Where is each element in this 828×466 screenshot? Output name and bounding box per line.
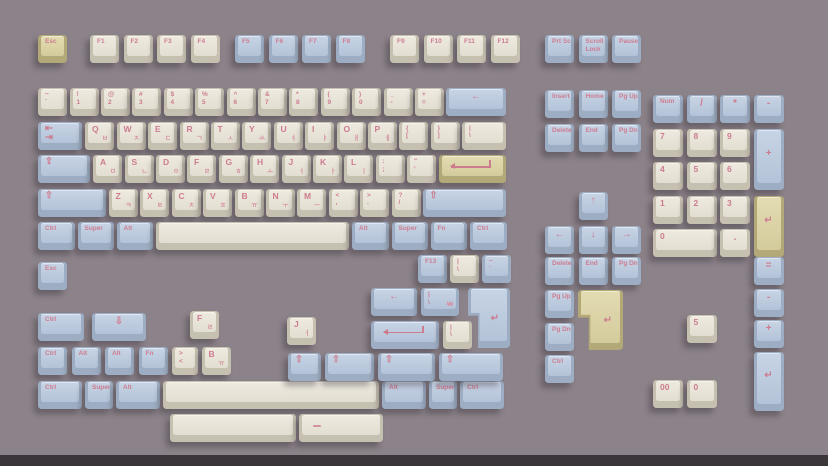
key-e-top-face: Eㄷ	[151, 123, 174, 143]
key-backslash-legend: | \	[469, 125, 471, 140]
key-arrow-right-glyph-icon: →	[615, 227, 638, 242]
key-arrow-left-glyph-icon: ←	[548, 227, 571, 242]
key-numpad-divide: /	[687, 95, 717, 123]
key-numpad-plus-1u-top-face: +	[757, 321, 781, 341]
key-numpad-6-legend: 6	[727, 165, 732, 174]
key-alt-15-right-legend: Alt	[389, 384, 398, 392]
key-won-sub-legend: ₩	[447, 301, 453, 308]
key-delete-legend: Delete	[552, 127, 572, 135]
key-right-alt-legend: Alt	[359, 225, 368, 233]
key-numpad-3-top-face: 3	[723, 197, 747, 217]
key-numpad-equals: =	[754, 257, 784, 285]
key-ctrl-15-right: Ctrl	[460, 381, 504, 409]
key-super-1u-left-legend: Super	[92, 384, 110, 392]
key-right-super: Super	[392, 222, 429, 250]
key-f11: F11	[457, 35, 486, 63]
key-k-sub-legend: ㅏ	[330, 165, 336, 175]
key-1-legend: ! 1	[77, 91, 81, 106]
key-f8-legend: F8	[343, 38, 351, 46]
key-quote-legend: " '	[414, 158, 417, 173]
key-n-legend: N	[273, 192, 279, 201]
key-j: Jㅓ	[282, 155, 311, 183]
key-f-homing-top-face: Fㄹ	[193, 312, 216, 332]
key-9-legend: ( 9	[328, 91, 332, 106]
key-a-sub-legend: ㅁ	[110, 165, 116, 175]
key-delete-top-face: Delete	[548, 125, 571, 145]
key-super-1u-left-top-face: Super	[88, 382, 110, 402]
key-left-alt: Alt	[117, 222, 154, 250]
key-h: Hㅗ	[250, 155, 279, 183]
key-pause: Pause	[612, 35, 641, 63]
key-enter-return-arrow-icon	[451, 166, 490, 168]
key-numpad-plus-1u-glyph-icon: +	[757, 321, 781, 336]
key-4: $ 4	[164, 88, 193, 116]
key-b-top-face: Bㅠ	[238, 190, 261, 210]
key-caps-lock-top-face: ⇪	[41, 156, 87, 176]
key-page-down-alt2-top-face: Pg Dn	[548, 324, 571, 344]
key-f4-legend: F4	[198, 38, 206, 46]
key-w-legend: W	[124, 125, 132, 134]
key-numpad-minus-top-face: -	[757, 96, 781, 116]
key-f2-top-face: F2	[127, 36, 150, 56]
key-page-down-top-face: Pg Dn	[615, 125, 638, 145]
key-a-legend: A	[100, 158, 106, 167]
key-numpad-plus-1u: +	[754, 320, 784, 348]
key-esc-alt-legend: Esc	[45, 265, 57, 273]
key-b: Bㅠ	[235, 189, 264, 217]
key-home-legend: Home	[586, 93, 604, 101]
key-t-top-face: Tㅅ	[214, 123, 237, 143]
key-m: Mㅡ	[297, 189, 326, 217]
key-quote-top-face: " '	[410, 156, 433, 176]
key-numpad-divide-glyph-icon: /	[690, 96, 714, 111]
key-ctrl-alt2-top-face: Ctrl	[548, 356, 571, 376]
key-spacebar-275u-top-face	[302, 415, 380, 435]
key-shift-175u-top-face: ⇧	[328, 354, 371, 374]
key-minus-top-face: _ -	[387, 89, 410, 109]
key-iso-enter-blue-top-face: ↵	[471, 289, 507, 341]
key-f11-legend: F11	[464, 38, 475, 46]
key-num-lock: Num	[653, 95, 683, 123]
key-numpad-multiply-top-face: *	[723, 96, 747, 116]
key-f12-legend: F12	[498, 38, 509, 46]
key-numpad-enter-2u-top-face: ↵	[757, 353, 781, 404]
key-r-top-face: Rㄱ	[183, 123, 206, 143]
key-spacebar-4u	[170, 414, 296, 442]
key-0: ) 0	[352, 88, 381, 116]
key-numpad-dot-top-face: .	[723, 230, 747, 250]
key-f9: F9	[390, 35, 419, 63]
key-numpad-6-top-face: 6	[723, 163, 747, 183]
key-numpad-9-legend: 9	[727, 132, 732, 141]
key-pipe-alt-1: | \	[450, 255, 479, 283]
key-page-down-alt-top-face: Pg Dn	[615, 258, 638, 278]
key-l-top-face: Lㅣ	[347, 156, 370, 176]
key-scroll-lock-top-face: Scroll Lock	[582, 36, 605, 56]
key-page-up: Pg Up	[612, 90, 641, 118]
key-insert-legend: Insert	[552, 93, 570, 101]
key-numpad-enter-2u: ↵	[754, 352, 784, 411]
key-page-up-alt-top-face: Pg Up	[548, 291, 571, 311]
key-f10: F10	[424, 35, 453, 63]
key-numpad-minus-alt-glyph-icon: -	[757, 290, 781, 305]
key-enter-225u-return-arrow-icon	[384, 332, 424, 334]
key-numpad-6: 6	[720, 162, 750, 190]
key-end-alt-top-face: End	[582, 258, 605, 278]
key-5-top-face: % 5	[198, 89, 221, 109]
key-numpad-0-1u-top-face: 0	[690, 381, 714, 401]
key-period-legend: > .	[367, 192, 371, 207]
key-0-top-face: ) 0	[355, 89, 378, 109]
key-numpad-7: 7	[653, 129, 683, 157]
key-6-legend: ^ 6	[234, 91, 238, 106]
key-ctrl-15-left-legend: Ctrl	[45, 384, 56, 392]
key-8-legend: * 8	[296, 91, 300, 106]
key-f3: F3	[157, 35, 186, 63]
key-caps-lock-legend: ⇪	[45, 157, 53, 166]
key-right-super-top-face: Super	[395, 223, 426, 243]
key-numpad-1: 1	[653, 196, 683, 224]
key-equals-legend: + =	[422, 91, 426, 106]
key-f3-top-face: F3	[160, 36, 183, 56]
key-x: Xㅌ	[140, 189, 169, 217]
key-numpad-5-homing: 5	[687, 315, 717, 343]
key-b-homing: Bㅠ	[202, 347, 231, 375]
key-ctrl-15-left: Ctrl	[38, 381, 82, 409]
key-q-sub-legend: ㅂ	[102, 132, 108, 142]
key-k: Kㅏ	[313, 155, 342, 183]
key-pipe-alt-1-top-face: | \	[453, 256, 476, 276]
key-b-legend: B	[242, 192, 248, 201]
key-super-1u-right-legend: Super	[436, 384, 454, 392]
key-equals-top-face: + =	[418, 89, 441, 109]
key-page-down-legend: Pg Dn	[619, 127, 638, 135]
key-esc-alt: Esc	[38, 262, 67, 290]
key-numpad-equals-top-face: =	[757, 258, 781, 278]
key-numpad-0-top-face: 0	[656, 230, 714, 250]
key-f10-legend: F10	[431, 38, 442, 46]
key-s-legend: S	[132, 158, 138, 167]
key-page-up-top-face: Pg Up	[615, 91, 638, 111]
key-h-top-face: Hㅗ	[253, 156, 276, 176]
key-w-sub-legend: ㅈ	[134, 132, 140, 142]
key-b-homing-legend: B	[209, 350, 215, 359]
key-numpad-enter-2u-glyph-icon: ↵	[757, 353, 781, 399]
key-numpad-5-homing-legend: 5	[694, 318, 699, 327]
key-numpad-4-legend: 4	[660, 165, 665, 174]
key-arrow-down-glyph-icon: ↓	[582, 227, 605, 242]
key-backspace-15u: ←	[371, 288, 417, 316]
key-c-sub-legend: ㅊ	[189, 199, 195, 209]
key-numpad-9-top-face: 9	[723, 130, 747, 150]
key-numpad-2-top-face: 2	[690, 197, 714, 217]
key-z-sub-legend: ㅋ	[126, 199, 132, 209]
key-num-lock-top-face: Num	[656, 96, 680, 116]
key-u-legend: U	[281, 125, 287, 134]
key-won: | \₩	[421, 288, 459, 316]
key-3-legend: # 3	[139, 91, 143, 106]
key-rbracket: } ]	[431, 122, 460, 150]
key-c: Cㅊ	[172, 189, 201, 217]
key-numpad-minus: -	[754, 95, 784, 123]
key-7-legend: & 7	[265, 91, 270, 106]
key-shift-225u-legend: ⇧	[446, 355, 454, 364]
key-v-top-face: Vㅍ	[206, 190, 229, 210]
key-backspace-15u-top-face: ←	[374, 289, 414, 309]
key-1-top-face: ! 1	[73, 89, 96, 109]
key-page-down: Pg Dn	[612, 124, 641, 152]
key-numpad-equals-glyph-icon: =	[757, 258, 781, 273]
key-o-legend: O	[344, 125, 351, 134]
key-ctrl-1u: Ctrl	[38, 347, 67, 375]
key-fn-legend: Fn	[438, 225, 446, 233]
key-page-up-alt: Pg Up	[545, 290, 574, 318]
key-f2-legend: F2	[131, 38, 139, 46]
key-semicolon-top-face: : ;	[379, 156, 402, 176]
key-numpad-1-top-face: 1	[656, 197, 680, 217]
key-numpad-plus: +	[754, 129, 784, 191]
key-a: Aㅁ	[93, 155, 122, 183]
key-numpad-5-legend: 5	[694, 165, 699, 174]
key-left-shift-top-face: ⇧	[41, 190, 103, 210]
key-caps-arrow: ⇩	[92, 313, 146, 341]
key-8-top-face: * 8	[292, 89, 315, 109]
key-p: Pㅔ	[368, 122, 397, 150]
key-left-alt-legend: Alt	[124, 225, 133, 233]
key-j-homing-top-face: Jㅓ	[290, 318, 313, 338]
key-shift-175u: ⇧	[325, 353, 374, 381]
key-d: Dㅇ	[156, 155, 185, 183]
key-arrow-down-top-face: ↓	[582, 227, 605, 247]
key-f-homing-legend: F	[197, 314, 202, 323]
key-grave-top-face: ~ `	[41, 89, 64, 109]
key-super-1u-left: Super	[85, 381, 113, 409]
key-numpad-2: 2	[687, 196, 717, 224]
key-n-top-face: Nㅜ	[269, 190, 292, 210]
key-arrow-up-glyph-icon: ↑	[582, 193, 605, 208]
key-equals: + =	[415, 88, 444, 116]
key-shift-125u-top-face: ⇧	[291, 354, 318, 374]
key-l-sub-legend: ㅣ	[361, 165, 367, 175]
key-m-sub-legend: ㅡ	[314, 199, 320, 209]
key-end-alt: End	[579, 257, 608, 285]
key-shift-225u-top-face: ⇧	[442, 354, 500, 374]
key-left-super: Super	[78, 222, 115, 250]
key-numpad-1-legend: 1	[660, 199, 665, 208]
key-j-homing-sub-legend: ㅓ	[304, 327, 310, 337]
key-numpad-5: 5	[687, 162, 717, 190]
key-scroll-lock-legend: Scroll Lock	[586, 38, 604, 53]
key-x-top-face: Xㅌ	[143, 190, 166, 210]
key-delete: Delete	[545, 124, 574, 152]
key-6-top-face: ^ 6	[230, 89, 253, 109]
key-pipe-alt-1-legend: | \	[457, 258, 459, 273]
key-u: Uㅕ	[274, 122, 303, 150]
key-numpad-enter: ↵	[754, 196, 784, 258]
key-g-top-face: Gㅎ	[222, 156, 245, 176]
key-tab: ⇤ ⇥	[38, 122, 82, 150]
key-shift-2u-legend: ⇧	[385, 355, 393, 364]
key-k-legend: K	[320, 158, 326, 167]
key-spacebar	[156, 222, 349, 250]
key-ctrl-15-right-legend: Ctrl	[467, 384, 478, 392]
key-left-super-top-face: Super	[81, 223, 112, 243]
key-u-top-face: Uㅕ	[277, 123, 300, 143]
key-numpad-8-top-face: 8	[690, 130, 714, 150]
key-numpad-plus-top-face: +	[757, 130, 781, 184]
key-o-sub-legend: ㅐ	[354, 132, 360, 142]
key-0-legend: ) 0	[359, 91, 363, 106]
key-numpad-minus-alt-top-face: -	[757, 290, 781, 310]
key-h-sub-legend: ㅗ	[267, 165, 273, 175]
key-2-legend: @ 2	[108, 91, 114, 106]
key-numpad-5-homing-top-face: 5	[690, 316, 714, 336]
key-f4-top-face: F4	[194, 36, 217, 56]
key-i-sub-legend: ㅑ	[322, 132, 328, 142]
key-q-legend: Q	[92, 125, 99, 134]
key-x-sub-legend: ㅌ	[157, 199, 163, 209]
key-numpad-7-legend: 7	[660, 132, 665, 141]
key-alt-1u-b: Alt	[105, 347, 134, 375]
key-g: Gㅎ	[219, 155, 248, 183]
key-numpad-plus-glyph-icon: +	[757, 130, 781, 179]
key-f1-top-face: F1	[93, 36, 116, 56]
key-end-alt-legend: End	[586, 260, 598, 268]
key-won-legend: | \	[428, 291, 430, 306]
key-f-legend: F	[194, 158, 199, 167]
key-lbracket-top-face: { [	[402, 123, 425, 143]
key-f2: F2	[124, 35, 153, 63]
key-p-legend: P	[375, 125, 381, 134]
key-numpad-enter-glyph-icon: ↵	[757, 197, 781, 246]
key-semicolon-legend: : ;	[383, 158, 385, 173]
key-home-top-face: Home	[582, 91, 605, 111]
key-s-sub-legend: ㄴ	[142, 165, 148, 175]
key-pipe-alt-2-top-face: | \	[446, 322, 469, 342]
key-a-top-face: Aㅁ	[96, 156, 119, 176]
key-backspace-top-face: ←	[449, 89, 503, 109]
key-pipe-alt-2: | \	[443, 321, 472, 349]
key-page-up-alt-legend: Pg Up	[552, 293, 571, 301]
key-4-top-face: $ 4	[167, 89, 190, 109]
key-3-top-face: # 3	[135, 89, 158, 109]
key-f12-top-face: F12	[494, 36, 517, 56]
key-esc-alt-top-face: Esc	[41, 263, 64, 283]
key-m-top-face: Mㅡ	[300, 190, 323, 210]
key-f5-top-face: F5	[238, 36, 261, 56]
key-f5-legend: F5	[242, 38, 250, 46]
key-c-top-face: Cㅊ	[175, 190, 198, 210]
key-spacebar-7u-top-face	[166, 382, 376, 402]
key-numpad-7-top-face: 7	[656, 130, 680, 150]
key-z-top-face: Zㅋ	[112, 190, 135, 210]
key-pause-legend: Pause	[619, 38, 638, 46]
key-insert-top-face: Insert	[548, 91, 571, 111]
key-fn-1u-legend: Fn	[146, 350, 154, 358]
key-d-top-face: Dㅇ	[159, 156, 182, 176]
key-caps-lock: ⇪	[38, 155, 90, 183]
key-left-shift: ⇧	[38, 189, 106, 217]
key-f10-top-face: F10	[427, 36, 450, 56]
key-iso-enter-blue: ↵	[468, 288, 510, 348]
key-page-down-alt2: Pg Dn	[545, 323, 574, 351]
key-f5: F5	[235, 35, 264, 63]
key-numpad-5-top-face: 5	[690, 163, 714, 183]
key-enter-top-face	[442, 156, 504, 176]
key-n: Nㅜ	[266, 189, 295, 217]
key-g-legend: G	[226, 158, 233, 167]
key-numpad-3-legend: 3	[727, 199, 732, 208]
key-numpad-2-legend: 2	[694, 199, 699, 208]
key-spacebar-7u	[163, 381, 379, 409]
key-minus: _ -	[384, 88, 413, 116]
key-j-homing-legend: J	[294, 320, 299, 329]
key-j-top-face: Jㅓ	[285, 156, 308, 176]
key-arrow-left-top-face: ←	[548, 227, 571, 247]
key-lbracket-legend: { [	[406, 125, 409, 140]
key-i: Iㅑ	[305, 122, 334, 150]
key-f7-top-face: F7	[305, 36, 328, 56]
key-shift-2u: ⇧	[378, 353, 435, 381]
key-iso-angle-top-face: > <	[175, 348, 195, 368]
key-m-legend: M	[304, 192, 311, 201]
key-comma: < ,	[329, 189, 358, 217]
key-numpad-00-legend: 00	[660, 383, 669, 392]
key-v-legend: V	[210, 192, 216, 201]
key-y-sub-legend: ㅛ	[259, 132, 265, 142]
key-numpad-0: 0	[653, 229, 717, 257]
key-comma-legend: < ,	[336, 192, 340, 207]
key-f6-top-face: F6	[272, 36, 295, 56]
key-f-sub-legend: ㄹ	[204, 165, 210, 175]
key-pause-top-face: Pause	[615, 36, 638, 56]
key-6: ^ 6	[227, 88, 256, 116]
key-numpad-0-1u: 0	[687, 380, 717, 408]
key-numpad-3: 3	[720, 196, 750, 224]
key-lbracket: { [	[399, 122, 428, 150]
key-f8-top-face: F8	[339, 36, 362, 56]
key-t: Tㅅ	[211, 122, 240, 150]
key-enter-225u-top-face	[374, 322, 436, 342]
key-b-homing-sub-legend: ㅠ	[219, 357, 225, 367]
key-delete-alt-top-face: Delete	[548, 258, 571, 278]
key-left-super-legend: Super	[85, 225, 103, 233]
key-alt-1u-b-top-face: Alt	[108, 348, 131, 368]
key-num-lock-legend: Num	[660, 98, 674, 106]
key-i-legend: I	[312, 125, 314, 134]
key-ctrl-alt-125-legend: Ctrl	[45, 316, 56, 324]
floor-edge	[0, 455, 828, 466]
key-esc-legend: Esc	[45, 38, 57, 46]
key-iso-angle: > <	[172, 347, 198, 375]
key-numpad-dot: .	[720, 229, 750, 257]
key-numpad-8: 8	[687, 129, 717, 157]
key-right-shift-top-face: ⇧	[426, 190, 504, 210]
key-q-top-face: Qㅂ	[88, 123, 111, 143]
key-rbracket-top-face: } ]	[434, 123, 457, 143]
key-right-shift: ⇧	[423, 189, 507, 217]
key-f9-legend: F9	[397, 38, 405, 46]
key-right-shift-legend: ⇧	[430, 191, 438, 200]
key-v-sub-legend: ㅍ	[220, 199, 226, 209]
key-print-screen-legend: Prt Sc	[552, 38, 571, 46]
key-arrow-up: ↑	[579, 192, 608, 220]
key-b-sub-legend: ㅠ	[252, 199, 258, 209]
key-1: ! 1	[70, 88, 99, 116]
key-numpad-0-legend: 0	[660, 232, 665, 241]
key-pipe-alt-2-legend: | \	[450, 324, 452, 339]
key-r: Rㄱ	[180, 122, 209, 150]
